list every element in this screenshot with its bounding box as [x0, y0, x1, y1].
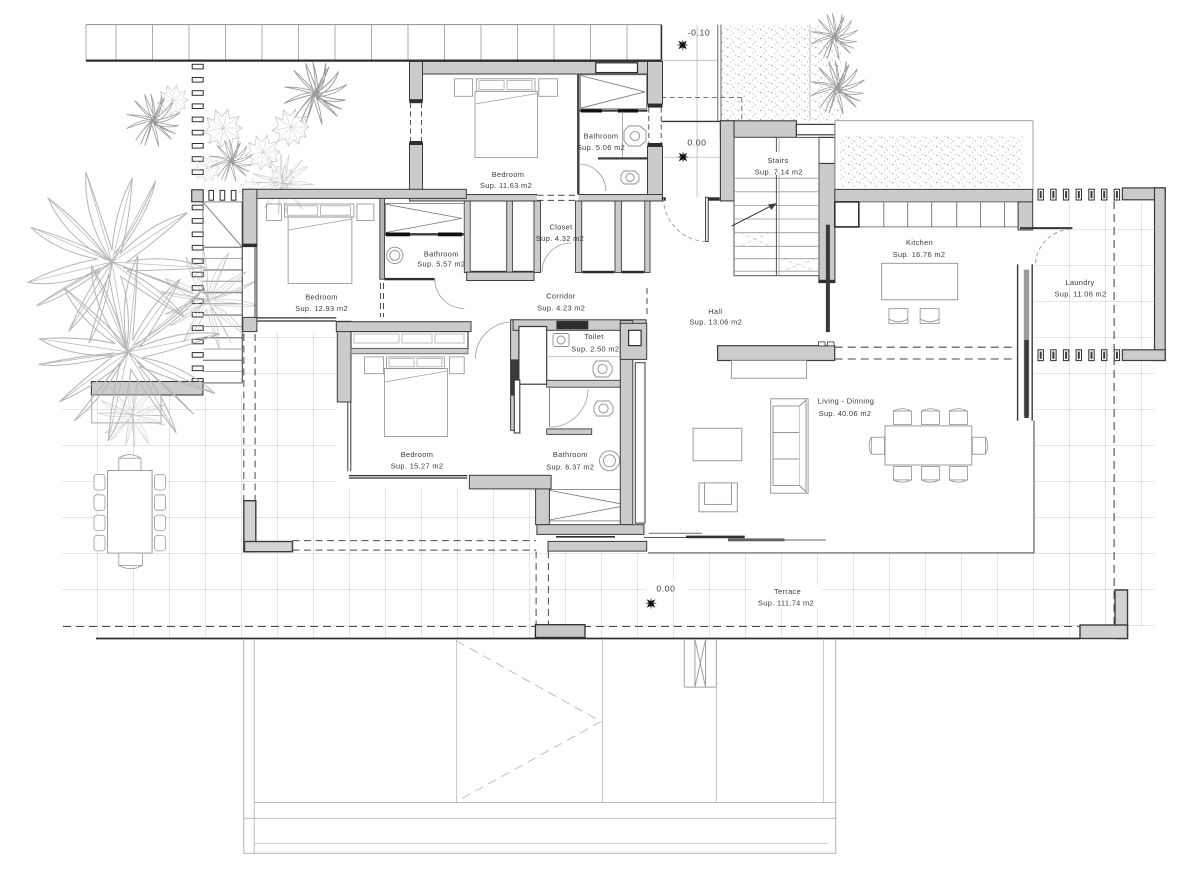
svg-text:Sup. 7.14 m2: Sup. 7.14 m2 [755, 168, 803, 177]
svg-text:Closet: Closet [549, 222, 572, 231]
svg-text:Hall: Hall [708, 307, 722, 316]
svg-text:Sup. 16.76 m2: Sup. 16.76 m2 [893, 250, 946, 259]
svg-text:0.00: 0.00 [687, 137, 706, 147]
svg-text:Bedroom: Bedroom [492, 170, 524, 179]
svg-text:Sup. 11.63 m2: Sup. 11.63 m2 [480, 181, 532, 190]
svg-text:Sup. 111.74 m2: Sup. 111.74 m2 [758, 599, 814, 608]
svg-text:Bedroom: Bedroom [305, 292, 337, 301]
svg-text:Stairs: Stairs [768, 156, 789, 165]
svg-text:Sup. 15.27 m2: Sup. 15.27 m2 [391, 461, 444, 470]
svg-text:Sup. 12.93 m2: Sup. 12.93 m2 [295, 304, 348, 313]
svg-text:Living - Dinning: Living - Dinning [818, 397, 875, 406]
svg-text:Bathroom: Bathroom [553, 450, 588, 459]
svg-text:Sup. 5.57 m2: Sup. 5.57 m2 [417, 260, 465, 269]
svg-text:-0.10: -0.10 [688, 27, 711, 37]
svg-text:0.00: 0.00 [656, 583, 675, 593]
svg-text:Corridor: Corridor [546, 291, 576, 300]
svg-text:Sup. 11.06 m2: Sup. 11.06 m2 [1054, 289, 1106, 298]
svg-text:Kitchen: Kitchen [906, 238, 933, 247]
svg-text:Bedroom: Bedroom [401, 450, 433, 459]
svg-text:Sup. 6.37 m2: Sup. 6.37 m2 [546, 462, 594, 471]
svg-text:Terrace: Terrace [774, 587, 801, 596]
svg-text:Sup. 13.06 m2: Sup. 13.06 m2 [689, 318, 742, 327]
svg-text:Bathroom: Bathroom [584, 131, 619, 140]
svg-text:Sup. 4.32 m2: Sup. 4.32 m2 [536, 234, 584, 243]
svg-text:Sup. 5.06 m2: Sup. 5.06 m2 [577, 143, 625, 152]
svg-text:Laundry: Laundry [1065, 278, 1094, 287]
svg-text:Sup. 40.06 m2: Sup. 40.06 m2 [819, 409, 872, 418]
svg-text:Sup. 2.50 m2: Sup. 2.50 m2 [571, 344, 619, 353]
svg-text:Bathroom: Bathroom [424, 250, 459, 259]
svg-text:Sup. 4.23 m2: Sup. 4.23 m2 [537, 304, 585, 313]
svg-text:Toilet: Toilet [584, 332, 603, 341]
